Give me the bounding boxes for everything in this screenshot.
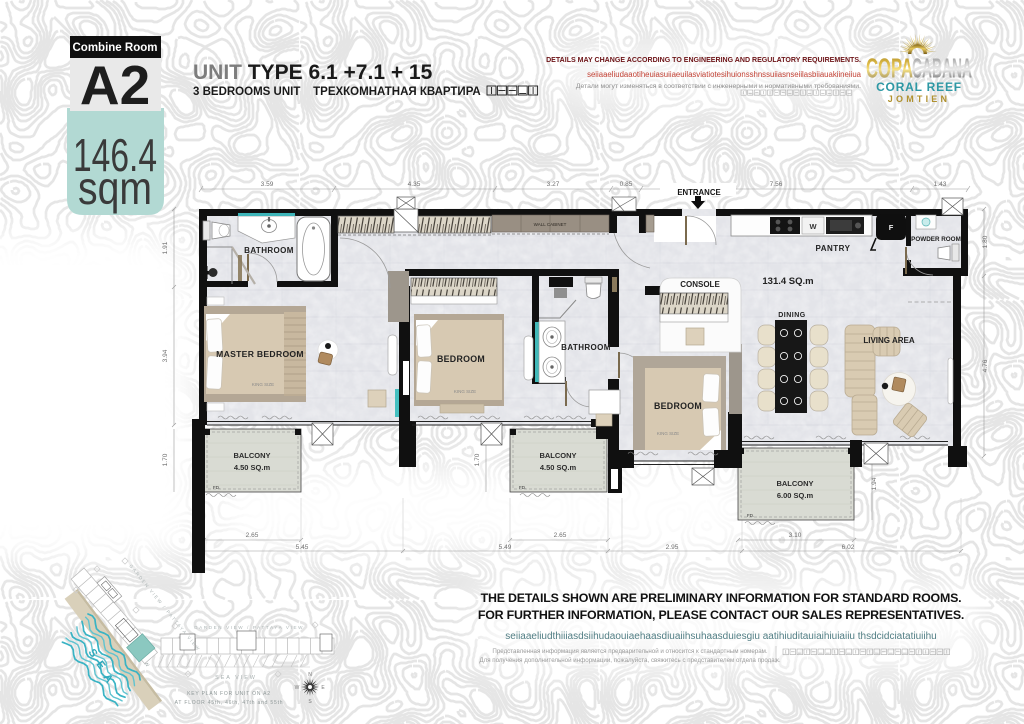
svg-text:5.49: 5.49 [499,544,512,551]
svg-text:seiiaaeliudthiiiasdsiihudaouia: seiiaaeliudthiiiasdsiihudaouiaehaasdiuai… [505,631,936,642]
svg-text:2.65: 2.65 [246,532,259,539]
svg-text:FD.: FD. [213,485,220,490]
svg-text:CABANA: CABANA [912,53,972,84]
svg-text:DETAILS MAY CHANGE ACCORDING T: DETAILS MAY CHANGE ACCORDING TO ENGINEER… [546,57,861,64]
svg-text:Combine Room: Combine Room [73,42,158,54]
svg-text:BEDROOM: BEDROOM [654,401,702,411]
svg-text:JOMTIEN: JOMTIEN [888,94,950,104]
svg-text:THE DETAILS SHOWN ARE PRELIMIN: THE DETAILS SHOWN ARE PRELIMINARY INFORM… [481,591,962,605]
svg-text:1.91: 1.91 [162,241,169,254]
svg-text:BALCONY: BALCONY [539,451,576,460]
svg-text:FD.: FD. [519,485,526,490]
svg-text:1.43: 1.43 [934,181,947,188]
svg-text:5.45: 5.45 [296,544,309,551]
svg-text:COPA: COPA [866,53,913,84]
svg-text:2.95: 2.95 [666,544,679,551]
svg-text:SEA VIEW: SEA VIEW [215,675,257,681]
svg-text:UNIT TYPE 6.1 +7.1 + 15: UNIT TYPE 6.1 +7.1 + 15 [193,61,433,84]
svg-text:A2: A2 [80,54,150,116]
svg-text:3.27: 3.27 [547,181,560,188]
svg-text:6.02: 6.02 [842,544,855,551]
svg-text:KING SIZE: KING SIZE [454,389,476,394]
svg-text:KING SIZE: KING SIZE [657,431,679,436]
svg-text:seiiaaeliudaaotiheuiasuiiaeuil: seiiaaeliudaaotiheuiasuiiaeuilasviatiote… [587,70,862,79]
svg-text:3.10: 3.10 [789,532,802,539]
svg-text:PANTRY: PANTRY [816,244,851,253]
svg-text:MASTER BEDROOM: MASTER BEDROOM [216,349,304,359]
svg-text:1.94: 1.94 [871,477,878,490]
svg-text:BALCONY: BALCONY [233,451,270,460]
svg-text:POWDER ROOM: POWDER ROOM [911,236,961,243]
svg-text:AT FLOOR 45th, 46th, 47th and: AT FLOOR 45th, 46th, 47th and 55th [175,700,284,706]
svg-text:BATHROOM: BATHROOM [561,343,611,352]
svg-text:N: N [308,672,312,678]
svg-text:7.56: 7.56 [770,181,783,188]
svg-text:KEY PLAN FOR UNIT ON A2: KEY PLAN FOR UNIT ON A2 [187,691,271,697]
svg-text:GARDEN VIEW / PATTAYA VIEW: GARDEN VIEW / PATTAYA VIEW [194,625,304,630]
svg-text:F: F [889,223,894,232]
svg-text:BEDROOM: BEDROOM [437,354,485,364]
svg-text:BALCONY: BALCONY [776,479,813,488]
svg-text:3.59: 3.59 [261,181,274,188]
svg-text:LIVING AREA: LIVING AREA [863,336,914,345]
svg-text:1.80: 1.80 [982,235,989,248]
svg-text:2.65: 2.65 [554,532,567,539]
svg-text:FD.: FD. [747,513,754,518]
svg-text:4.50 SQ.m: 4.50 SQ.m [540,463,577,472]
svg-text:Представленная информация явля: Представленная информация является предв… [492,648,768,655]
svg-text:4.50 SQ.m: 4.50 SQ.m [234,463,271,472]
svg-text:1.70: 1.70 [162,453,169,466]
svg-text:W: W [295,685,300,691]
svg-text:Детали могут изменяться в соот: Детали могут изменяться в соответствии с… [576,82,861,90]
svg-text:WALL CABINET: WALL CABINET [534,222,567,227]
svg-text:CORAL REEF: CORAL REEF [876,80,962,94]
svg-text:3 BEDROOMS UNIT ТРЕХКОМНАТН: 3 BEDROOMS UNIT ТРЕХКОМНАТНАЯ КВАРТИРА [193,86,481,98]
svg-text:W: W [809,222,817,231]
svg-text:DINING: DINING [778,312,806,319]
svg-text:131.4 SQ.m: 131.4 SQ.m [762,276,813,287]
svg-text:0.85: 0.85 [620,181,633,188]
svg-text:4.35: 4.35 [408,181,421,188]
svg-text:BATHROOM: BATHROOM [244,246,294,255]
svg-text:Для получения дополнительной и: Для получения дополнительной информации,… [479,657,780,664]
svg-text:3.94: 3.94 [162,349,169,362]
svg-text:sqm: sqm [78,162,152,214]
svg-text:CONSOLE: CONSOLE [680,280,720,289]
svg-text:4.76: 4.76 [982,359,989,372]
svg-text:KING SIZE: KING SIZE [252,382,274,387]
svg-text:FOR FURTHER INFORMATION, PLEAS: FOR FURTHER INFORMATION, PLEASE CONTACT … [478,608,964,622]
svg-text:6.00 SQ.m: 6.00 SQ.m [777,491,814,500]
svg-text:1.70: 1.70 [474,453,481,466]
svg-text:ENTRANCE: ENTRANCE [677,188,720,197]
